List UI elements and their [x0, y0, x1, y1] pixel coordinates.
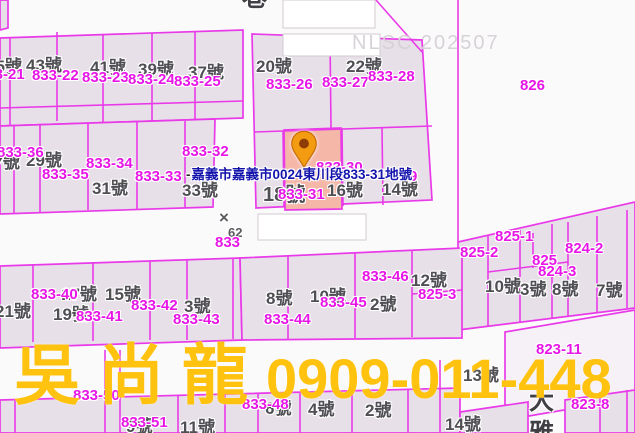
street-number-label: 8號 [266, 290, 292, 307]
parcel-number-label: 833-43 [173, 312, 220, 327]
parcel-number-label: 833-33 [135, 169, 182, 184]
street-number-label: 16號 [327, 182, 363, 199]
cadastral-map[interactable]: 45號43號41號39號37號20號22號27號29號31號33號18號16號1… [0, 0, 635, 433]
parcel-number-label: 833-23 [82, 70, 129, 85]
street-number-label: 10號 [485, 278, 521, 295]
parcel-number-label: 833-31 [278, 187, 325, 202]
ad-watermark: 吳尚龍0909-011-448 [14, 342, 612, 408]
parcel-number-label: 833-21 [0, 67, 25, 82]
road-name-label: 巷 [242, 0, 267, 11]
nlsc-watermark: NLSC 202507 [352, 33, 500, 53]
parcel-number-label: 825-1 [495, 229, 533, 244]
parcel-number-label: 833-46 [362, 269, 409, 284]
street-number-label: 7號 [596, 282, 622, 299]
parcel-number-label: 833-40 [31, 287, 78, 302]
survey-label: × [219, 209, 229, 226]
parcel-number-label: 826 [520, 78, 545, 93]
street-number-label: 11號 [180, 419, 215, 433]
parcel-number-label: 833 [215, 235, 240, 250]
parcel-number-label: 833-45 [320, 295, 367, 310]
tooltip-dash: - [186, 167, 191, 182]
parcel-number-label: 824-3 [538, 264, 576, 279]
parcel-number-label: 833-25 [174, 74, 221, 89]
street-number-label: 21號 [0, 303, 31, 320]
tooltip-text: 嘉義市嘉義市0024東川段833-31地號 [192, 167, 413, 182]
address-tooltip: -嘉義市嘉義市0024東川段833-31地號 [186, 166, 412, 184]
parcel-number-label: 833-41 [76, 309, 123, 324]
street-number-label: 3號 [520, 281, 546, 298]
parcel-number-label: 833-26 [266, 77, 313, 92]
road-name-label: 雅 [529, 421, 554, 433]
parcel-number-label: 833-51 [121, 415, 168, 430]
street-number-label: 31號 [92, 180, 128, 197]
street-number-label: 2號 [370, 296, 396, 313]
location-pin-icon[interactable] [290, 130, 318, 170]
parcel-number-label: 833-36 [0, 145, 44, 160]
street-number-label: 33號 [182, 182, 218, 199]
parcel-number-label: 833-44 [264, 312, 311, 327]
street-number-label: 20號 [256, 58, 292, 75]
parcel-number-label: 833-32 [182, 144, 229, 159]
parcel-number-label: 833-28 [368, 69, 415, 84]
street-number-label: 8號 [552, 281, 578, 298]
parcel-number-label: 833-22 [32, 68, 79, 83]
parcel-number-label: 824-2 [565, 241, 603, 256]
ad-watermark-phone: 0909-011-448 [266, 347, 612, 410]
parcel-number-label: 833-42 [131, 298, 178, 313]
parcel-number-label: 833-35 [42, 167, 89, 182]
parcel-number-label: 825-2 [460, 245, 498, 260]
parcel-number-label: 825-3 [418, 287, 456, 302]
parcel-number-label: 833-27 [322, 75, 369, 90]
parcel-number-label: 833-34 [86, 156, 133, 171]
street-number-label: 14號 [445, 416, 481, 433]
parcel-number-label: 833-24 [128, 72, 175, 87]
ad-watermark-name: 吳尚龍 [14, 338, 266, 412]
